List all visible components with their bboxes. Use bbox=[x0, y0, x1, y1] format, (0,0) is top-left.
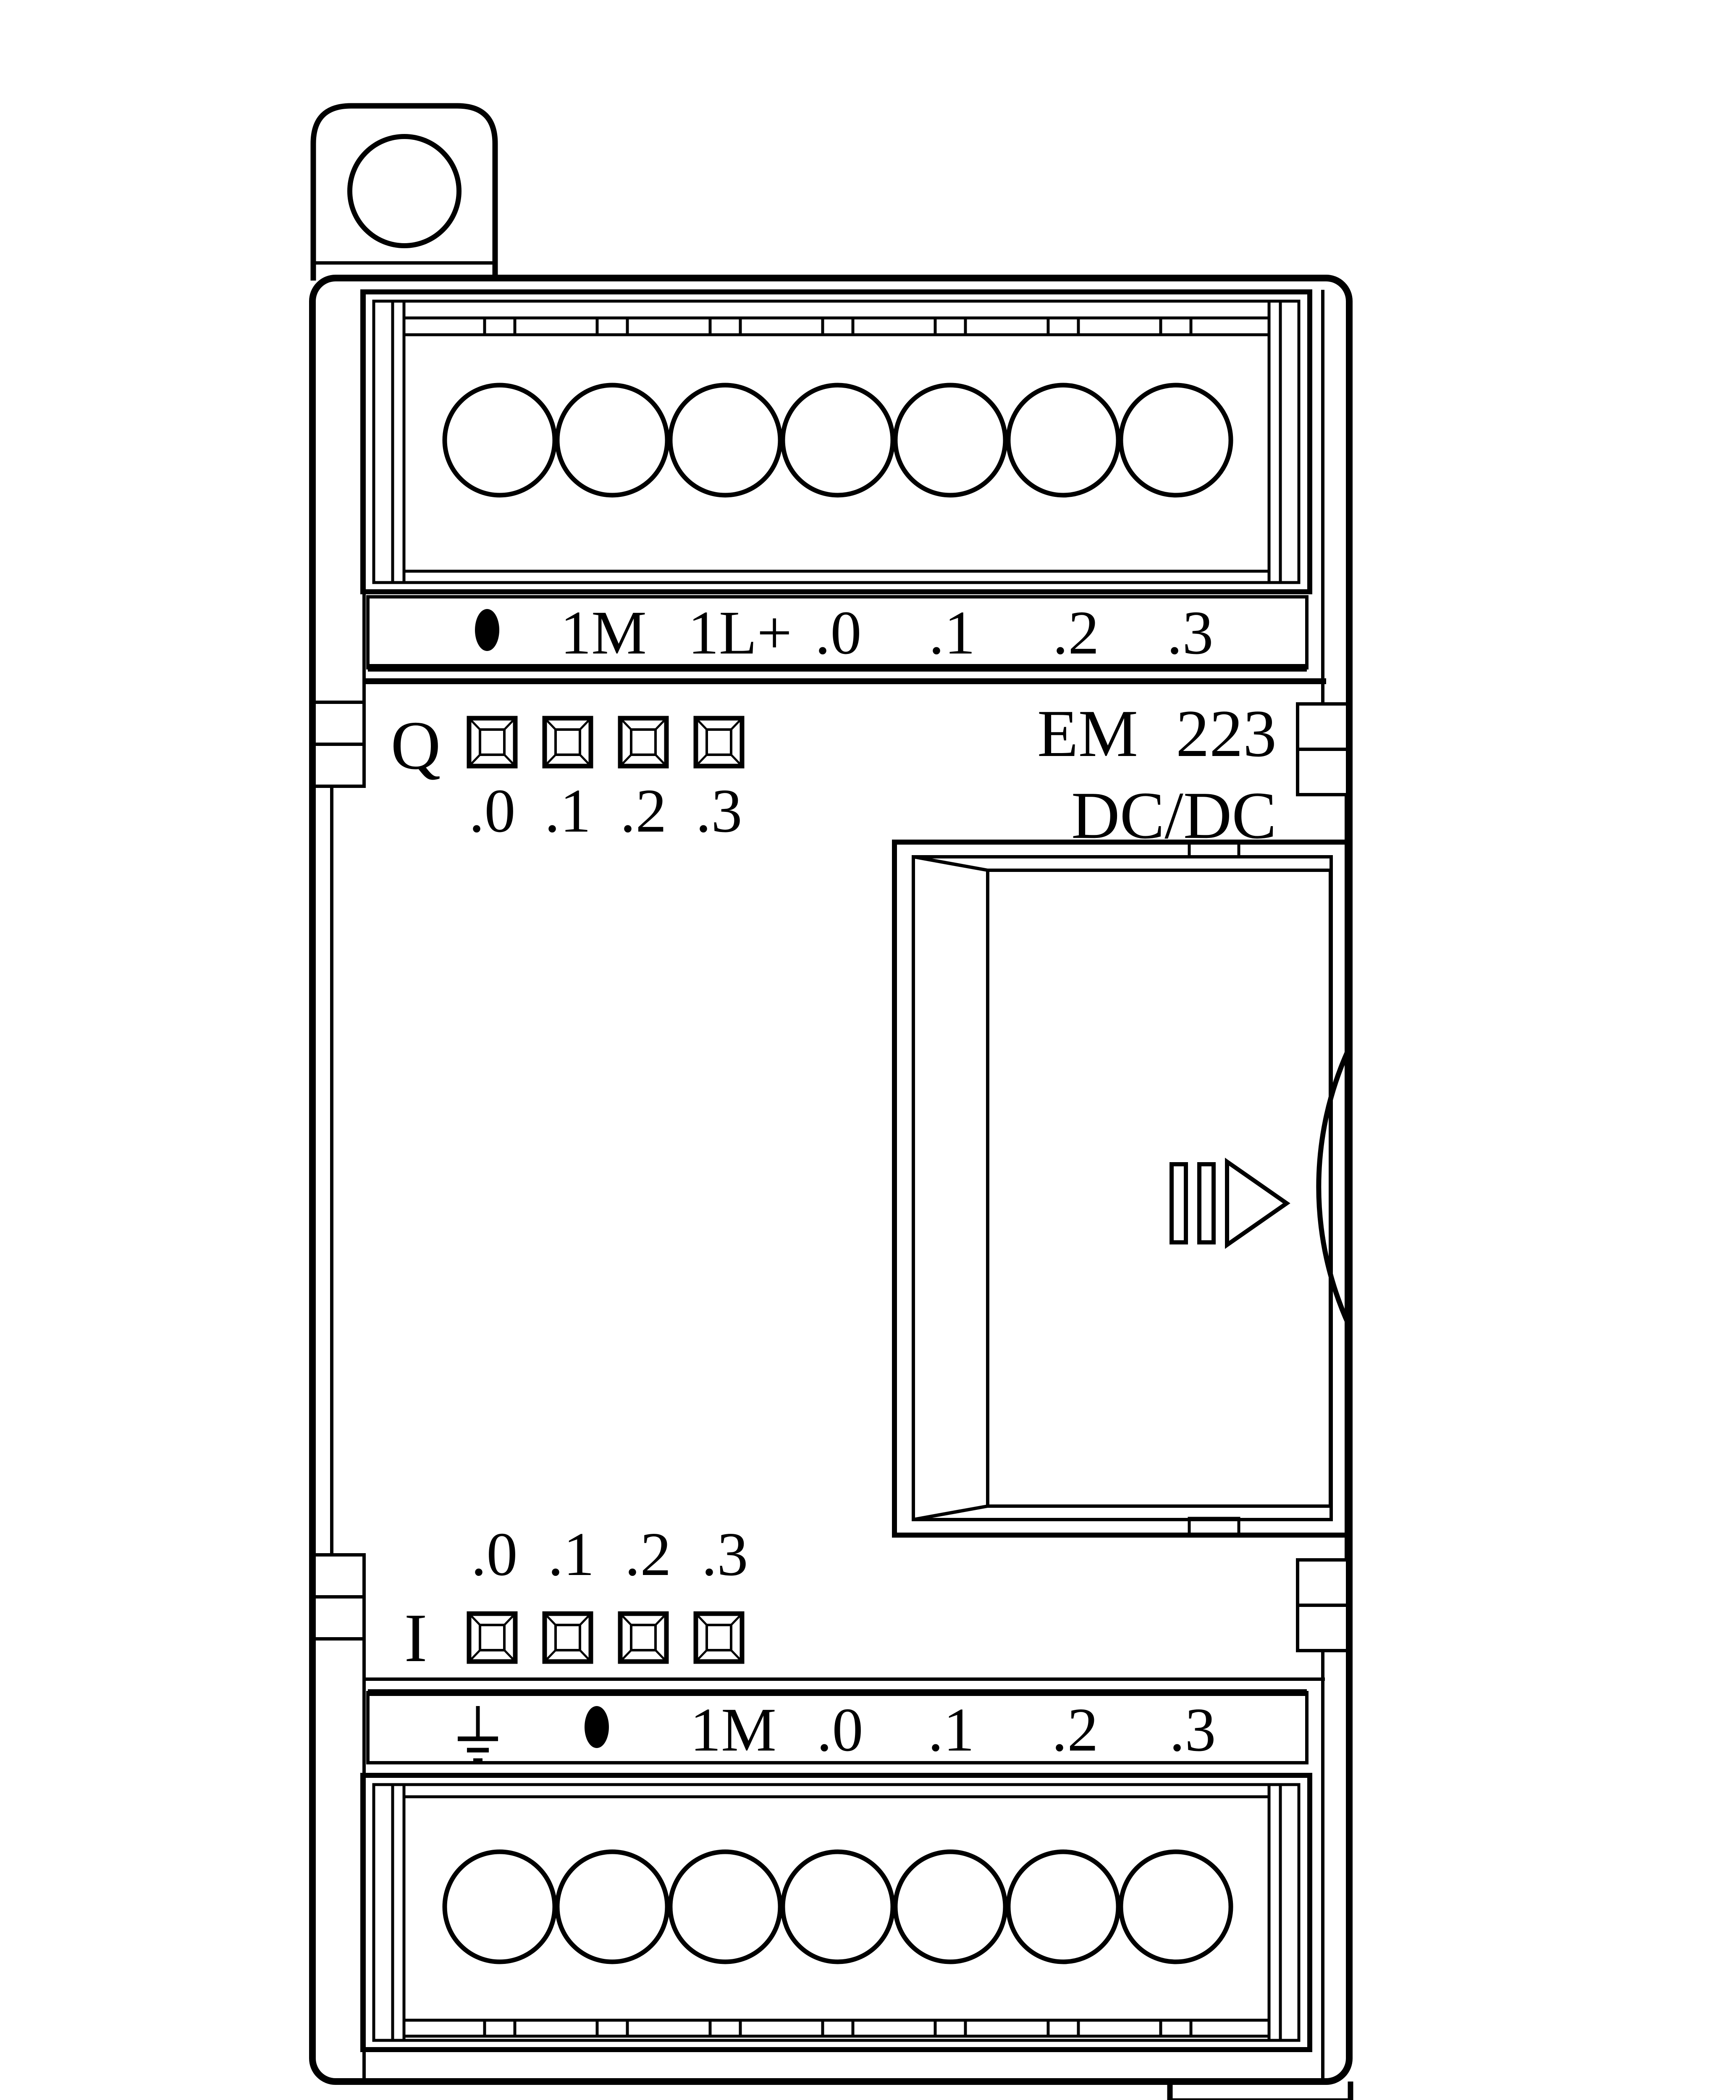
input-led-label: .0 bbox=[471, 1520, 518, 1589]
right-clip-notch bbox=[1298, 704, 1349, 749]
ground-symbol-icon bbox=[458, 1706, 498, 1761]
module-body-outline bbox=[312, 278, 1349, 2082]
bottom-terminal-holes bbox=[445, 1852, 1231, 1962]
terminal-hole-icon bbox=[445, 385, 555, 495]
output-led-labels: .0.1.2.3 bbox=[469, 777, 742, 845]
terminal-label-1m-bottom: 1M bbox=[690, 1696, 776, 1764]
led-indicator-icon bbox=[620, 1614, 666, 1662]
wire-dot-icon bbox=[585, 1706, 609, 1748]
connector-icon-triangle bbox=[1227, 1162, 1287, 1245]
door-bevel-diagonal bbox=[913, 857, 988, 870]
input-led-row bbox=[469, 1614, 742, 1662]
bottom-terminal-block-inner bbox=[374, 1785, 1299, 2040]
terminal-label-i1: .1 bbox=[928, 1696, 975, 1764]
terminal-label-i0: .0 bbox=[817, 1696, 863, 1764]
output-row-letter: Q bbox=[391, 707, 441, 784]
top-terminal-block bbox=[363, 292, 1310, 592]
left-clip-notch bbox=[312, 1597, 364, 1639]
bottom-block-ticks bbox=[485, 2020, 1191, 2036]
led-indicator-icon bbox=[696, 1614, 742, 1662]
terminal-hole-icon bbox=[1008, 385, 1118, 495]
bottom-terminal-block bbox=[363, 1775, 1310, 2050]
wire-dot-icon bbox=[475, 609, 499, 651]
terminal-label-q0: .0 bbox=[815, 598, 862, 667]
output-led-row bbox=[469, 718, 742, 766]
input-row-letter: I bbox=[404, 1599, 427, 1676]
led-indicator-icon bbox=[469, 1614, 515, 1662]
top-terminal-block-inner bbox=[374, 301, 1299, 583]
terminal-label-i2: .2 bbox=[1052, 1696, 1099, 1764]
door-outer bbox=[894, 842, 1348, 1535]
output-led-label: .0 bbox=[469, 777, 516, 845]
led-indicator-icon bbox=[545, 1614, 591, 1662]
input-led-labels: .0.1.2.3 bbox=[471, 1520, 748, 1589]
door-bevel-diagonal bbox=[913, 1506, 988, 1520]
terminal-hole-icon bbox=[1121, 385, 1231, 495]
mounting-hole-top-icon bbox=[350, 136, 459, 246]
input-led-label: .2 bbox=[625, 1520, 671, 1589]
led-indicator-icon bbox=[620, 718, 666, 766]
mounting-tab-top bbox=[313, 106, 495, 281]
terminal-label-1m-top: 1M bbox=[560, 598, 647, 667]
terminal-hole-icon bbox=[895, 385, 1005, 495]
terminal-hole-icon bbox=[557, 385, 667, 495]
door-panel bbox=[988, 870, 1330, 1506]
terminal-label-1lplus: 1L+ bbox=[688, 598, 792, 667]
terminal-hole-icon bbox=[783, 1852, 893, 1962]
output-led-label: .1 bbox=[545, 777, 591, 845]
right-clip-notch bbox=[1298, 749, 1349, 795]
left-clip-notch bbox=[312, 702, 364, 744]
connector-icon-bar bbox=[1199, 1164, 1214, 1242]
em223-wiring-diagram: 1M 1L+ .0 .1 .2 .3 Q .0.1.2.3 EM 223 DC/… bbox=[0, 0, 1736, 2100]
led-indicator-icon bbox=[545, 718, 591, 766]
terminal-hole-icon bbox=[445, 1852, 555, 1962]
terminal-hole-icon bbox=[670, 385, 780, 495]
model-name: EM 223 bbox=[1037, 696, 1277, 771]
led-indicator-icon bbox=[469, 718, 515, 766]
terminal-label-q2: .2 bbox=[1053, 598, 1099, 667]
top-terminal-holes bbox=[445, 385, 1231, 495]
left-clip-notch bbox=[312, 1555, 364, 1597]
terminal-hole-icon bbox=[783, 385, 893, 495]
connector-icon-bar bbox=[1172, 1164, 1186, 1242]
output-led-label: .3 bbox=[696, 777, 742, 845]
right-clip-notch bbox=[1298, 1560, 1349, 1605]
terminal-hole-icon bbox=[1008, 1852, 1118, 1962]
terminal-label-i3: .3 bbox=[1170, 1696, 1216, 1764]
page: 1M 1L+ .0 .1 .2 .3 Q .0.1.2.3 EM 223 DC/… bbox=[0, 0, 1736, 2100]
terminal-hole-icon bbox=[557, 1852, 667, 1962]
led-indicator-icon bbox=[696, 718, 742, 766]
terminal-hole-icon bbox=[1121, 1852, 1231, 1962]
left-clip-notch bbox=[312, 744, 364, 786]
terminal-hole-icon bbox=[895, 1852, 1005, 1962]
output-led-label: .2 bbox=[620, 777, 667, 845]
right-clip-notch bbox=[1298, 1605, 1349, 1651]
terminal-label-q3: .3 bbox=[1167, 598, 1214, 667]
top-block-ticks bbox=[485, 318, 1191, 335]
terminal-label-q1: .1 bbox=[929, 598, 976, 667]
input-led-label: .1 bbox=[548, 1520, 595, 1589]
terminal-hole-icon bbox=[670, 1852, 780, 1962]
input-led-label: .3 bbox=[702, 1520, 748, 1589]
